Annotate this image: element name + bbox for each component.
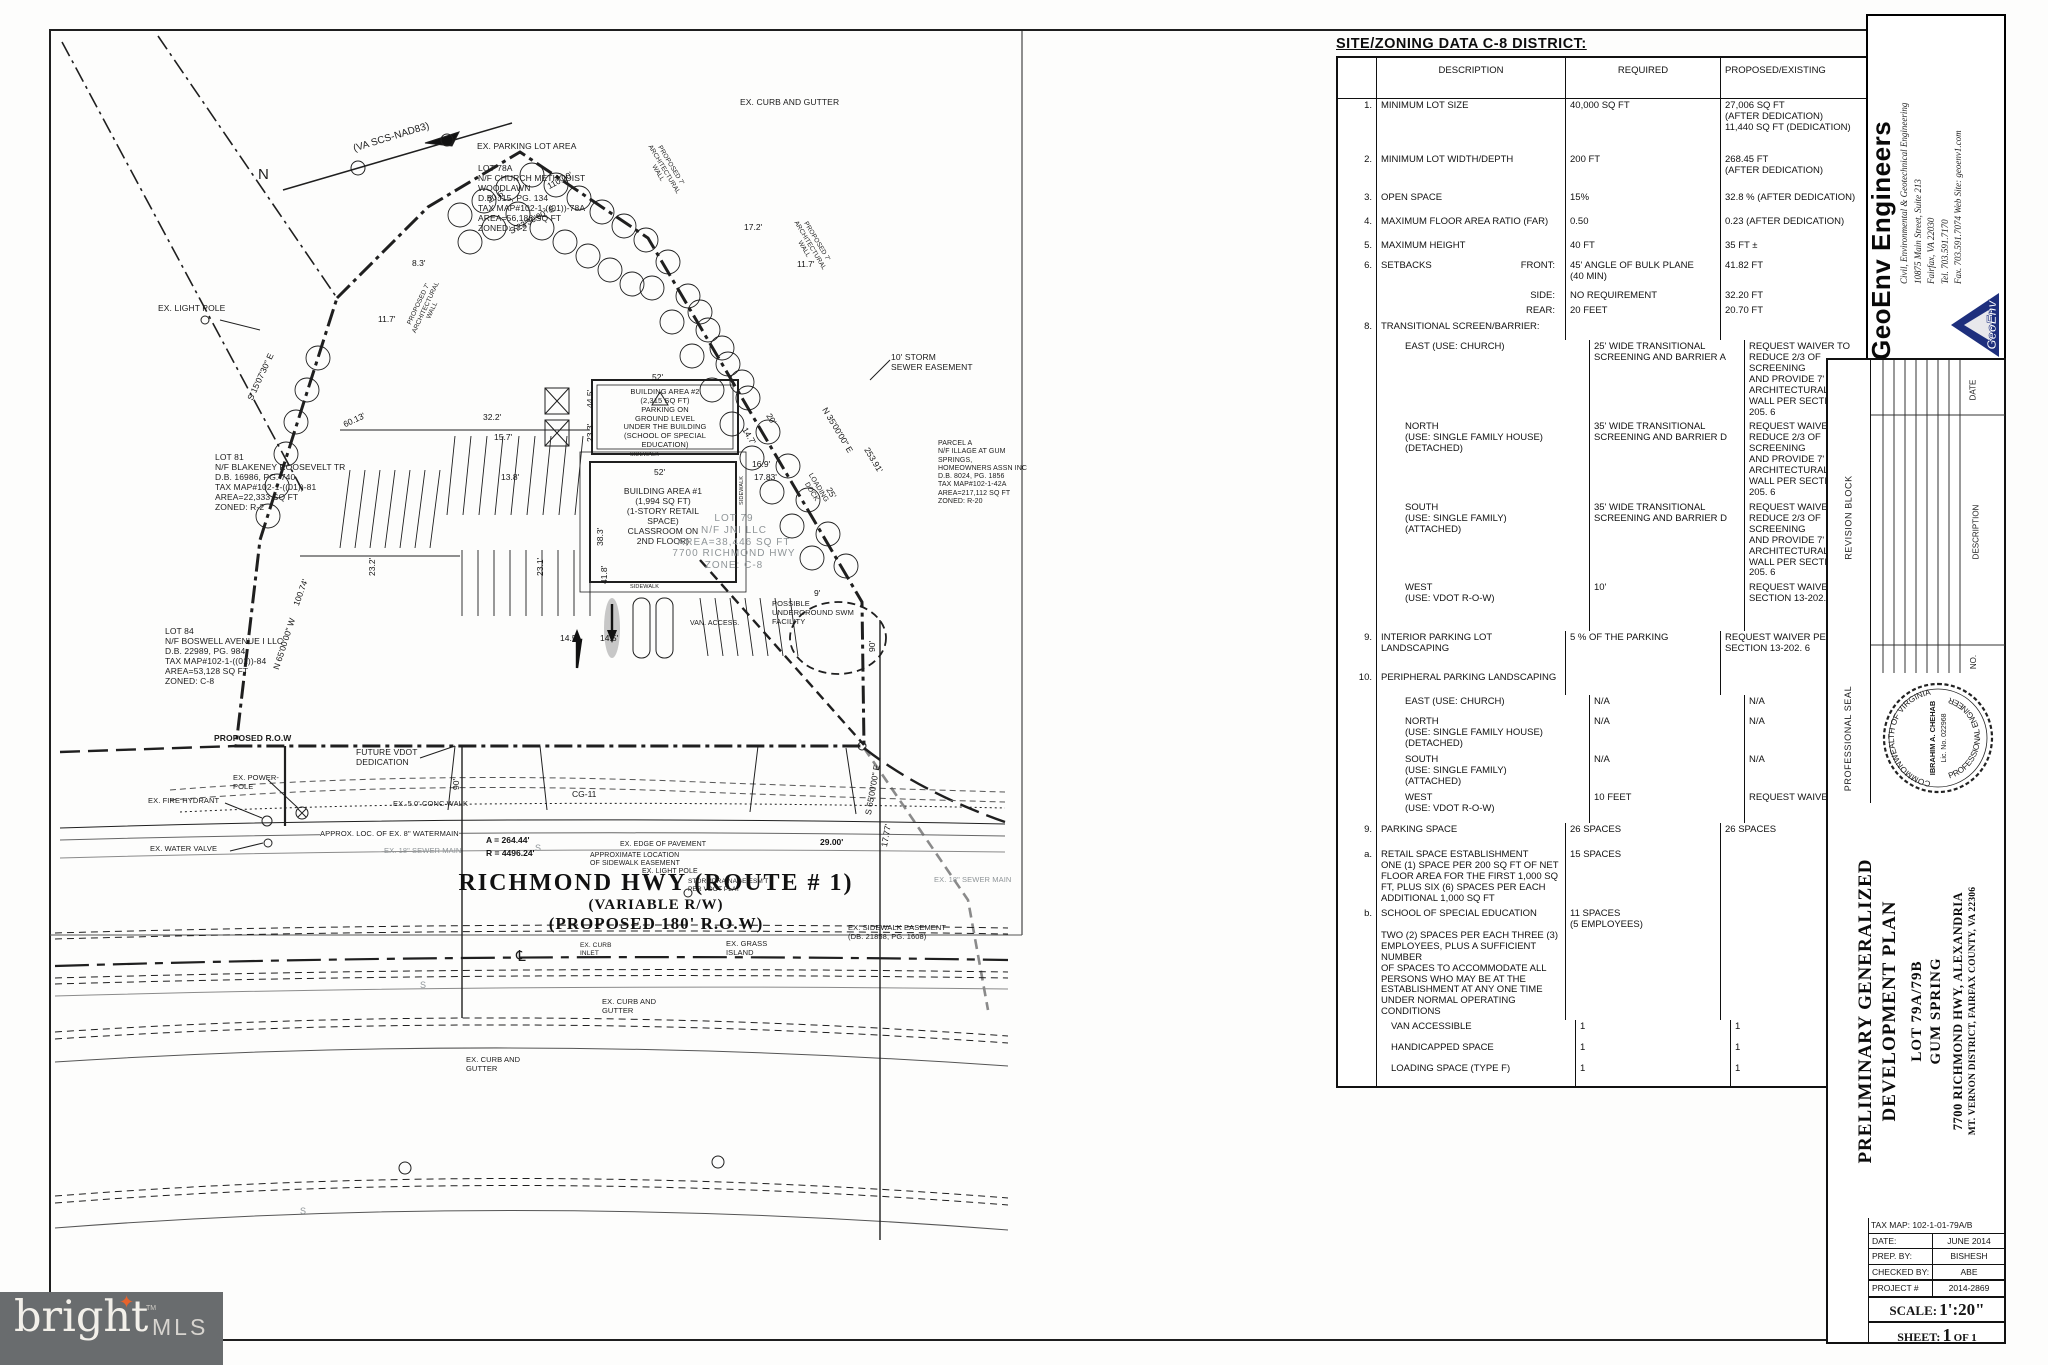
drawing-title-content: PRELIMINARY GENERALIZED DEVELOPMENT PLAN… [1828,803,2004,1218]
table-cell: a. [1338,848,1376,907]
label-light-pole-2: EX. LIGHT POLE [642,868,698,876]
table-cell: WEST (USE: VDOT R-O-W) [1376,581,1589,631]
table-cell: 3. [1338,191,1376,215]
firm-name: GeoEnv Engineers [1868,22,1894,360]
table-cell [1720,320,1878,340]
table-cell: MINIMUM LOT WIDTH/DEPTH [1376,153,1565,191]
label-lot-79-watermark: LOT 79 N/F JNI LLC AREA=38,446 SQ FT 770… [664,513,804,572]
table-cell: 35' WIDE TRANSITIONAL SCREENING AND BARR… [1589,420,1744,500]
table-cell: 4. [1338,215,1376,239]
curve-data-label: A = 264.44' [486,836,530,845]
table-cell: 9. [1338,631,1376,671]
firm-fax-web: Fax. 703.591.7074 Web Site: geoenv1.com [1952,22,1966,284]
label-lot-84: LOT 84 N/F BOSWELL AVENUE I LLC D.B. 229… [165,626,283,686]
dim-label: 52' [652,373,663,382]
zoning-row: 8.TRANSITIONAL SCREEN/BARRIER: [1338,320,1878,340]
table-cell: 8. [1338,320,1376,340]
zoning-row: 10.PERIPHERAL PARKING LANDSCAPING [1338,671,1878,695]
title-line-1: PRELIMINARY GENERALIZED [1854,803,1878,1218]
zoning-row: EAST (USE: CHURCH)25' WIDE TRANSITIONAL … [1338,340,1878,420]
table-cell [1338,1020,1376,1041]
table-cell: 26 SPACES [1565,823,1720,848]
title-line-5: 7700 RICHMOND HWY, ALEXANDRIA [1951,803,1966,1218]
label-swm-facility: POSSIBLE UNDERGROUND SWM FACILITY [772,600,854,627]
firm-block: GeoEnv Engineers Civil, Environmental & … [1866,14,2006,362]
table-cell: 2. [1338,153,1376,191]
revision-col-description: DESCRIPTION [1972,505,1980,560]
title-line-4: GUM SPRING [1927,803,1947,1218]
svg-text:COMMONWEALTH OF VIRGINIA: COMMONWEALTH OF VIRGINIA [1887,688,1932,789]
info-block: TAX MAP: 102-1-01-79A/B DATE:JUNE 2014 P… [1826,1218,2006,1344]
zoning-row: EAST (USE: CHURCH)N/AN/A [1338,695,1878,715]
table-cell: 27,006 SQ FT (AFTER DEDICATION) 11,440 S… [1720,99,1878,153]
table-cell [1338,1062,1376,1086]
bright-mls-watermark: bright ✦ TM MLS [0,1292,223,1365]
table-header-cell: DESCRIPTION [1376,58,1565,98]
table-cell: RETAIL SPACE ESTABLISHMENT ONE (1) SPACE… [1376,848,1565,907]
zoning-row: SIDE:NO REQUIREMENT32.20 FT [1338,289,1878,304]
table-cell: 15 SPACES [1565,848,1720,907]
scale-row: SCALE: 1':20" [1869,1297,2005,1323]
dim-label: 14.5' [600,634,618,643]
label-sidewalk-2: SIDEWALK [630,584,659,590]
table-cell: 40,000 SQ FT [1565,99,1720,153]
drawing-title-block: PRELIMINARY GENERALIZED DEVELOPMENT PLAN… [1826,803,2006,1219]
table-cell: SIDE: [1376,289,1565,304]
label-power-pole: EX. POWER- POLE [233,774,279,792]
zoning-row: REAR:20 FEET20.70 FT [1338,304,1878,320]
table-cell: 35' WIDE TRANSITIONAL SCREENING AND BARR… [1589,501,1744,581]
label-storm-drainage-esmt: STORMDRAINAGE ESM'T PER VDOT PLAT [688,878,768,893]
zoning-header-row: DESCRIPTION REQUIRED PROPOSED/EXISTING [1338,58,1878,99]
trademark-symbol: TM [146,1305,156,1312]
mls-wordmark: MLS [152,1316,208,1339]
title-line-6: MT. VERNON DISTRICT, FAIRFAX COUNTY, VA … [1968,803,1978,1218]
table-cell: 40 FT [1565,239,1720,259]
table-cell: INTERIOR PARKING LOT LANDSCAPING [1376,631,1565,671]
label-sidewalk-1: SIDEWALK [630,452,659,458]
table-cell: 5 % OF THE PARKING [1565,631,1720,671]
table-cell [1338,340,1376,420]
table-cell: MAXIMUM HEIGHT [1376,239,1565,259]
table-cell: NORTH (USE: SINGLE FAMILY HOUSE) (DETACH… [1376,420,1589,500]
zoning-row: WEST (USE: VDOT R-O-W)10 FEETREQUEST WAI… [1338,791,1878,823]
table-cell: SCHOOL OF SPECIAL EDUCATION TWO (2) SPAC… [1376,907,1565,1020]
table-cell [1338,581,1376,631]
richmond-hwy-title: RICHMOND HWY (ROUTE # 1) (VARIABLE R/W) … [446,870,866,934]
table-cell: VAN ACCESSIBLE [1376,1020,1575,1041]
table-cell: 200 FT [1565,153,1720,191]
table-cell [1565,671,1720,695]
zoning-row: VAN ACCESSIBLE11 [1338,1020,1878,1041]
table-cell: 45' ANGLE OF BULK PLANE (40 MIN) [1565,259,1720,289]
firm-address-1: 10875 Main Street, Suite 213 [1912,22,1926,284]
label-edge-pavement: EX. EDGE OF PAVEMENT [620,841,706,849]
table-cell: SOUTH (USE: SINGLE FAMILY) (ATTACHED) [1376,501,1589,581]
table-cell [1338,753,1376,791]
tax-map-row: TAX MAP: 102-1-01-79A/B [1869,1218,2005,1234]
dim-label: 11.7' [378,315,396,324]
table-cell [1338,289,1376,304]
label-van-access: VAN. ACCESS. [690,620,739,628]
date-row: DATE:JUNE 2014 [1869,1234,2005,1250]
table-cell: HANDICAPPED SPACE [1376,1041,1575,1062]
table-cell: NO REQUIREMENT [1565,289,1720,304]
table-cell [1338,695,1376,715]
centerline-symbol: ℄ [516,948,526,966]
dim-label: 9' [814,589,820,598]
table-cell: 11 SPACES (5 EMPLOYEES) [1565,907,1720,1020]
table-cell: 268.45 FT (AFTER DEDICATION) [1720,153,1878,191]
zoning-row: 4.MAXIMUM FLOOR AREA RATIO (FAR)0.500.23… [1338,215,1878,239]
sewer-s-marker-1: S [535,843,541,854]
table-cell: 20 FEET [1565,304,1720,320]
label-conc-walk: EX. 5.0' CONC WALK [393,800,468,809]
hwy-line-3: (PROPOSED 180' R.O.W) [446,914,866,934]
table-cell: SETBACKSFRONT: [1376,259,1565,289]
zoning-row: LOADING SPACE (TYPE F)11 [1338,1062,1878,1086]
table-cell: MAXIMUM FLOOR AREA RATIO (FAR) [1376,215,1565,239]
table-cell: 1. [1338,99,1376,153]
label-sewer-main-2: EX. 18" SEWER MAIN [934,876,1011,885]
firm-contact: Civil, Environmental & Geotechnical Engi… [1898,22,1966,284]
svg-text:Lic. No. 022968: Lic. No. 022968 [1941,713,1948,762]
sheet-row: SHEET: 1 OF 1 [1869,1323,2005,1347]
label-lot-81: LOT 81 N/F BLAKENEY ROOSEVELT TR D.B. 16… [215,452,345,512]
zoning-table-title: SITE/ZONING DATA C-8 DISTRICT: [1336,36,1587,52]
dim-label: 38.3' [596,528,605,546]
zoning-row: b.SCHOOL OF SPECIAL EDUCATION TWO (2) SP… [1338,907,1878,1020]
table-cell: b. [1338,907,1376,1020]
table-cell: 25' WIDE TRANSITIONAL SCREENING AND BARR… [1589,340,1744,420]
dim-label: 90' [452,779,461,790]
curve-data-label: R = 4496.24' [486,849,535,858]
table-header-cell: REQUIRED [1565,58,1720,98]
table-cell: 0.50 [1565,215,1720,239]
dim-label: 44.5' [586,390,595,408]
prep-by-row: PREP. BY:BISHESH [1869,1249,2005,1265]
table-cell: 32.8 % (AFTER DEDICATION) [1720,191,1878,215]
table-cell: 15% [1565,191,1720,215]
label-sewer-main-1: EX. 18" SEWER MAIN [384,847,461,856]
table-cell: 20.70 FT [1720,304,1878,320]
zoning-row: HANDICAPPED SPACE11 [1338,1041,1878,1062]
table-cell: EAST (USE: CHURCH) [1376,340,1589,420]
table-cell: 1 [1575,1020,1730,1041]
table-cell [1338,304,1376,320]
sewer-s-marker-3: S [300,1206,306,1217]
label-curb-gutter-top: EX. CURB AND GUTTER [740,97,839,107]
zoning-row: SOUTH (USE: SINGLE FAMILY) (ATTACHED)35'… [1338,501,1878,581]
zoning-row: NORTH (USE: SINGLE FAMILY HOUSE) (DETACH… [1338,420,1878,500]
table-cell: 10 FEET [1589,791,1744,823]
dim-label: 11.7' [797,260,815,269]
label-curb-inlet: EX. CURB INLET [580,942,612,957]
table-cell: OPEN SPACE [1376,191,1565,215]
table-cell: MINIMUM LOT SIZE [1376,99,1565,153]
label-watermain: APPROX. LOC. OF EX. 8" WATERMAIN [320,830,459,839]
table-cell: TRANSITIONAL SCREEN/BARRIER: [1376,320,1565,340]
curb-type-label: CG-11 [572,790,596,799]
plan-sheet: N (VA SCS-NAD83) EX. PARKING LOT AREA EX… [0,0,2048,1365]
revision-caption: REVISION BLOCK [1828,360,1870,675]
table-cell: N/A [1589,715,1744,753]
revision-grid: DATE DESCRIPTION NO. [1870,360,2005,675]
label-water-valve: EX. WATER VALVE [150,845,217,854]
firm-tel: Tel. 703.591.7170 [1939,22,1953,284]
svg-text:IBRAHIM A. CHEHAB: IBRAHIM A. CHEHAB [1928,701,1937,775]
revision-col-no: NO. [1970,655,1978,669]
dim-label: 17.2' [744,223,762,232]
geoenv-logo-icon: GeoEnv [1948,290,2002,360]
dim-label: 13.8' [501,473,519,482]
revision-col-date: DATE [1969,380,1977,401]
zoning-row: WEST (USE: VDOT R-O-W)10'REQUEST WAIVER … [1338,581,1878,631]
info-grid: TAX MAP: 102-1-01-79A/B DATE:JUNE 2014 P… [1868,1218,2005,1342]
zoning-row: NORTH (USE: SINGLE FAMILY HOUSE) (DETACH… [1338,715,1878,753]
zoning-row: 9.INTERIOR PARKING LOT LANDSCAPING5 % OF… [1338,631,1878,671]
dim-label: 52' [654,468,665,477]
professional-seal-stamp: COMMONWEALTH OF VIRGINIA PROFESSIONAL EN… [1880,680,1996,796]
table-cell [1338,501,1376,581]
dim-label: 23.1' [536,558,545,576]
revision-block: REVISION BLOCK DATE DESCRIPTION NO. [1826,358,2006,676]
zoning-row: SOUTH (USE: SINGLE FAMILY) (ATTACHED)N/A… [1338,753,1878,791]
table-cell: 35 FT ± [1720,239,1878,259]
table-cell [1338,1041,1376,1062]
zoning-row: 1.MINIMUM LOT SIZE40,000 SQ FT27,006 SQ … [1338,99,1878,153]
table-cell: NORTH (USE: SINGLE FAMILY HOUSE) (DETACH… [1376,715,1589,753]
zoning-table: DESCRIPTION REQUIRED PROPOSED/EXISTING 1… [1336,56,1880,1088]
table-cell: LOADING SPACE (TYPE F) [1376,1062,1575,1086]
dim-label: 29.00' [820,838,843,847]
table-cell: PERIPHERAL PARKING LANDSCAPING [1376,671,1565,695]
table-cell [1338,715,1376,753]
table-cell: EAST (USE: CHURCH) [1376,695,1589,715]
revision-grid-lines [1871,360,2005,675]
label-parcel-a: PARCEL A N/F ILLAGE AT GUM SPRINGS, HOME… [938,440,1030,506]
label-curb-gutter-2: EX. CURB AND GUTTER [602,998,656,1016]
table-cell: WEST (USE: VDOT R-O-W) [1376,791,1589,823]
seal-block: PROFESSIONAL SEAL COMMONWEALTH OF VIRGIN… [1826,673,2006,804]
star-icon: ✦ [119,1292,134,1313]
table-cell: 9. [1338,823,1376,848]
dim-label: 15.7' [494,433,512,442]
table-cell: 0.23 (AFTER DEDICATION) [1720,215,1878,239]
seal-area: COMMONWEALTH OF VIRGINIA PROFESSIONAL EN… [1870,673,2005,803]
table-cell: REAR: [1376,304,1565,320]
title-line-2: DEVELOPMENT PLAN [1878,803,1902,1218]
label-proposed-row: PROPOSED R.O.W [214,733,291,743]
label-ex-parking-lot: EX. PARKING LOT AREA [477,141,576,151]
table-cell [1338,420,1376,500]
label-sidewalk-easement: EX. SIDEWALK EASEMENT (DB. 21858, PG. 16… [848,924,946,942]
zoning-row: a.RETAIL SPACE ESTABLISHMENT ONE (1) SPA… [1338,848,1878,907]
svg-text:GeoEnv: GeoEnv [1984,300,1999,350]
firm-tagline: Civil, Environmental & Geotechnical Engi… [1898,22,1912,284]
label-future-vdot: FUTURE VDOT DEDICATION [356,747,418,767]
dim-label: 23.3' [586,424,595,442]
dim-label: 14.5' [560,634,578,643]
table-cell: SOUTH (USE: SINGLE FAMILY) (ATTACHED) [1376,753,1589,791]
zoning-row: 6.SETBACKSFRONT:45' ANGLE OF BULK PLANE … [1338,259,1878,289]
dim-label: 32.2' [483,413,501,422]
dim-label: 16.9' [752,460,770,469]
label-building-area-2: BUILDING AREA #2 (2,315 SQ FT) PARKING O… [596,388,734,450]
sewer-s-marker-2: S [420,980,426,991]
table-cell: 5. [1338,239,1376,259]
label-grass-island: EX. GRASS ISLAND [726,940,767,958]
firm-block-content: GeoEnv Engineers Civil, Environmental & … [1868,22,2004,366]
seal-caption: PROFESSIONAL SEAL [1828,673,1870,803]
label-sidewalk-3: SIDEWALK [739,476,745,505]
label-light-pole-1: EX. LIGHT POLE [158,303,225,313]
checked-by-row: CHECKED BY:ABE [1869,1265,2005,1281]
zoning-row: 5.MAXIMUM HEIGHT40 FT35 FT ± [1338,239,1878,259]
zoning-row: 9.PARKING SPACE26 SPACES26 SPACES [1338,823,1878,848]
dim-label: 23.2' [368,558,377,576]
hwy-line-2: (VARIABLE R/W) [446,897,866,914]
label-storm-easement: 10' STORM SEWER EASEMENT [891,352,973,372]
table-cell: 10. [1338,671,1376,695]
dim-label: 41.8' [600,566,609,584]
table-header-cell [1338,58,1376,98]
dim-label: 17.83' [754,473,777,482]
table-cell: 1 [1575,1041,1730,1062]
dim-label: 8.3' [412,259,425,268]
table-cell: PARKING SPACE [1376,823,1565,848]
label-approx-sidewalk-easement: APPROXIMATE LOCATION OF SIDEWALK EASEMEN… [590,852,680,869]
table-cell [1565,320,1720,340]
table-cell: 6. [1338,259,1376,289]
dim-label: 90' [868,641,877,652]
label-curb-gutter-3: EX. CURB AND GUTTER [466,1056,520,1074]
zoning-row: 2.MINIMUM LOT WIDTH/DEPTH200 FT268.45 FT… [1338,153,1878,191]
table-cell [1338,791,1376,823]
label-fire-hydrant: EX. FIRE HYDRANT [148,797,219,806]
title-line-3: LOT 79A/79B [1908,803,1928,1218]
table-cell: N/A [1589,753,1744,791]
table-cell: 1 [1575,1062,1730,1086]
project-row: PROJECT #2014-2869 [1869,1280,2005,1297]
table-cell: N/A [1589,695,1744,715]
north-arrow-label: N [258,166,269,184]
table-cell: 41.82 FT [1720,259,1878,289]
table-header-cell: PROPOSED/EXISTING [1720,58,1878,98]
firm-address-2: Fairfax, VA 22030 [1925,22,1939,284]
table-cell: 32.20 FT [1720,289,1878,304]
zoning-row: 3.OPEN SPACE15%32.8 % (AFTER DEDICATION) [1338,191,1878,215]
table-cell: 10' [1589,581,1744,631]
